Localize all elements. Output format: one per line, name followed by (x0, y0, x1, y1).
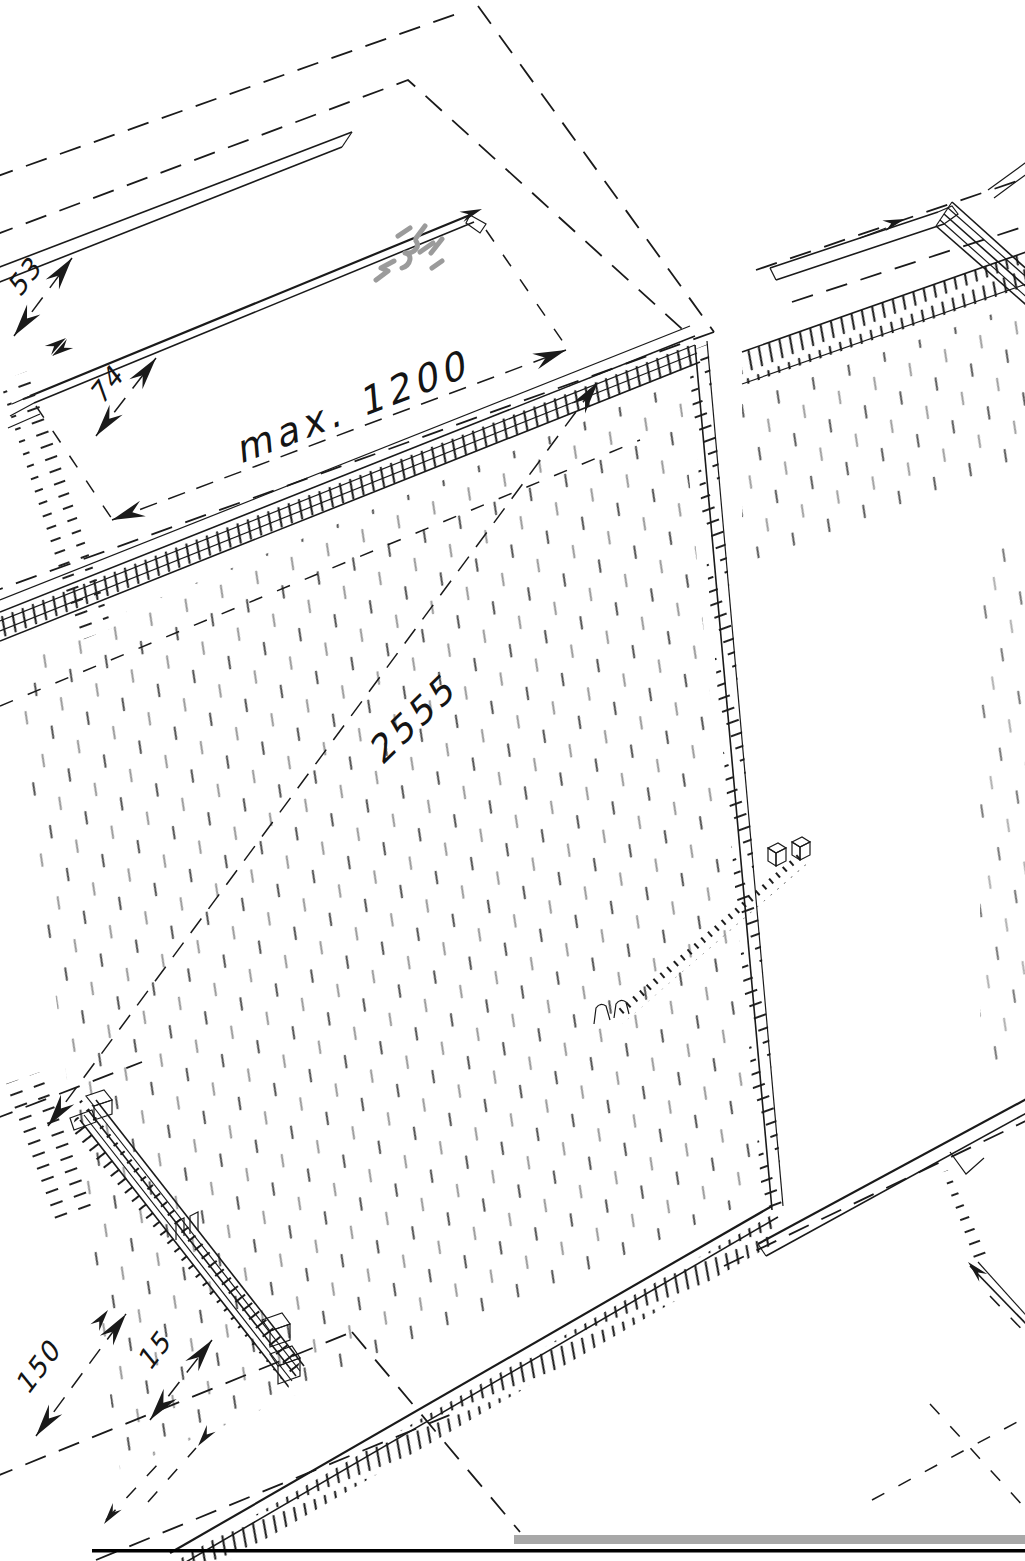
technical-drawing-page: max. 1200 2555 53 74 (0, 0, 1025, 1561)
isometric-assembly-drawing: max. 1200 2555 53 74 (0, 0, 1025, 1561)
wall-right-dots (980, 530, 1025, 1070)
label-floor-overall: 150 (12, 1330, 66, 1400)
dimension-top-inner: 74 (45, 333, 156, 436)
label-top-gap: 53 (4, 248, 47, 303)
main-panel (0, 326, 784, 1561)
corner-dim-arrow (964, 1258, 987, 1281)
corner-piece (770, 206, 958, 280)
footer-gray-bar (514, 1535, 1025, 1544)
rail-end-arrow (459, 204, 483, 222)
label-top-inner: 74 (86, 356, 129, 411)
corner-tick-column (934, 1170, 986, 1260)
footer-rule (92, 1549, 1025, 1553)
top-panel-edges (0, 132, 352, 285)
gray-scribble-annotation (376, 226, 442, 280)
